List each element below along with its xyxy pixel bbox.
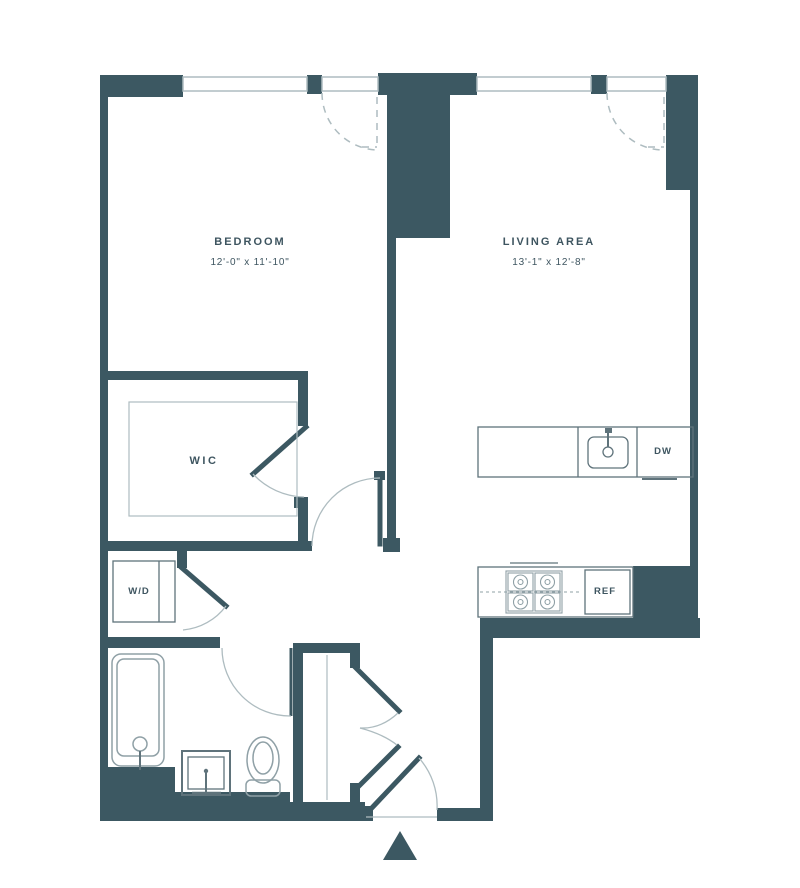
stove-burner-icon (514, 575, 528, 589)
wall-bottom (290, 802, 365, 821)
dishwasher-label: DW (654, 446, 672, 457)
wall-wic-north (100, 371, 308, 380)
stove-burner-icon (535, 593, 560, 611)
closet-bifold-arc (360, 713, 398, 728)
wic-door-leaf (253, 427, 306, 474)
wic-door-arc (253, 474, 304, 497)
entry-triangle-icon (383, 831, 417, 860)
wall-bedroom-south (100, 541, 312, 551)
wall-left (100, 95, 108, 795)
stove-burner-icon (545, 600, 550, 605)
wall (387, 95, 450, 238)
wall (437, 808, 493, 821)
closet-bifold-leaf (356, 668, 399, 711)
washer-dryer-door-arc (183, 606, 226, 630)
faucet-icon (603, 447, 613, 457)
wall (378, 73, 477, 95)
bathtub-drain-icon (133, 737, 147, 751)
stove-burner-icon (545, 580, 550, 585)
balcony-door-arc (607, 93, 664, 150)
closet-bifold-leaf (359, 747, 398, 786)
wall-bath-north (100, 637, 220, 648)
living-area-dimensions: 13'-1" x 12'-8" (512, 257, 586, 268)
window (322, 77, 378, 91)
washer-dryer-door-leaf (182, 568, 226, 606)
wic-label: WIC (190, 455, 219, 467)
balcony-door-arc (322, 93, 378, 150)
stove-burner-icon (514, 595, 528, 609)
washer-dryer-label: W/D (128, 586, 149, 597)
window-mullion (307, 75, 322, 94)
wall-hall-divider (387, 237, 396, 542)
living-area-label: LIVING AREA (503, 236, 596, 248)
wall-closet-top (293, 643, 360, 653)
window-mullion (591, 75, 607, 94)
wall (383, 538, 400, 552)
floor-plan-drawing (0, 0, 800, 888)
wall (480, 638, 493, 812)
bedroom-door-arc (312, 478, 380, 546)
wall (666, 75, 698, 190)
bedroom-dimensions: 12'-0" x 11'-10" (210, 257, 289, 268)
bathtub-icon (112, 654, 164, 766)
toilet-icon (247, 737, 279, 783)
toilet-icon (253, 742, 273, 774)
entry-door-arc (419, 758, 437, 810)
window (477, 77, 591, 91)
stove-burner-icon (518, 600, 523, 605)
wall-right (690, 190, 698, 570)
refrigerator-label: REF (594, 586, 616, 597)
floor-plan: BEDROOM 12'-0" x 11'-10" LIVING AREA 13'… (0, 0, 800, 888)
wall (480, 618, 700, 638)
balcony-door-swings (322, 93, 664, 150)
stove-burner-icon (541, 595, 555, 609)
wall (100, 75, 183, 97)
bedroom-label: BEDROOM (214, 236, 285, 248)
faucet-icon (605, 428, 612, 433)
window (183, 77, 307, 91)
wall (294, 497, 308, 508)
stove-burner-icon (541, 575, 555, 589)
stove-burner-icon (508, 593, 533, 611)
wall-closet-left (293, 653, 303, 803)
wall (298, 380, 308, 426)
bathroom-door-arc (222, 648, 291, 716)
stove-burner-icon (508, 573, 533, 591)
vanity-drain-icon (204, 769, 208, 773)
stove-burner-icon (535, 573, 560, 591)
bathtub-icon (117, 659, 159, 756)
closet-bifold-arc (360, 728, 397, 745)
stove-burner-icon (518, 580, 523, 585)
wall-bottom (100, 767, 175, 821)
window (607, 77, 666, 91)
